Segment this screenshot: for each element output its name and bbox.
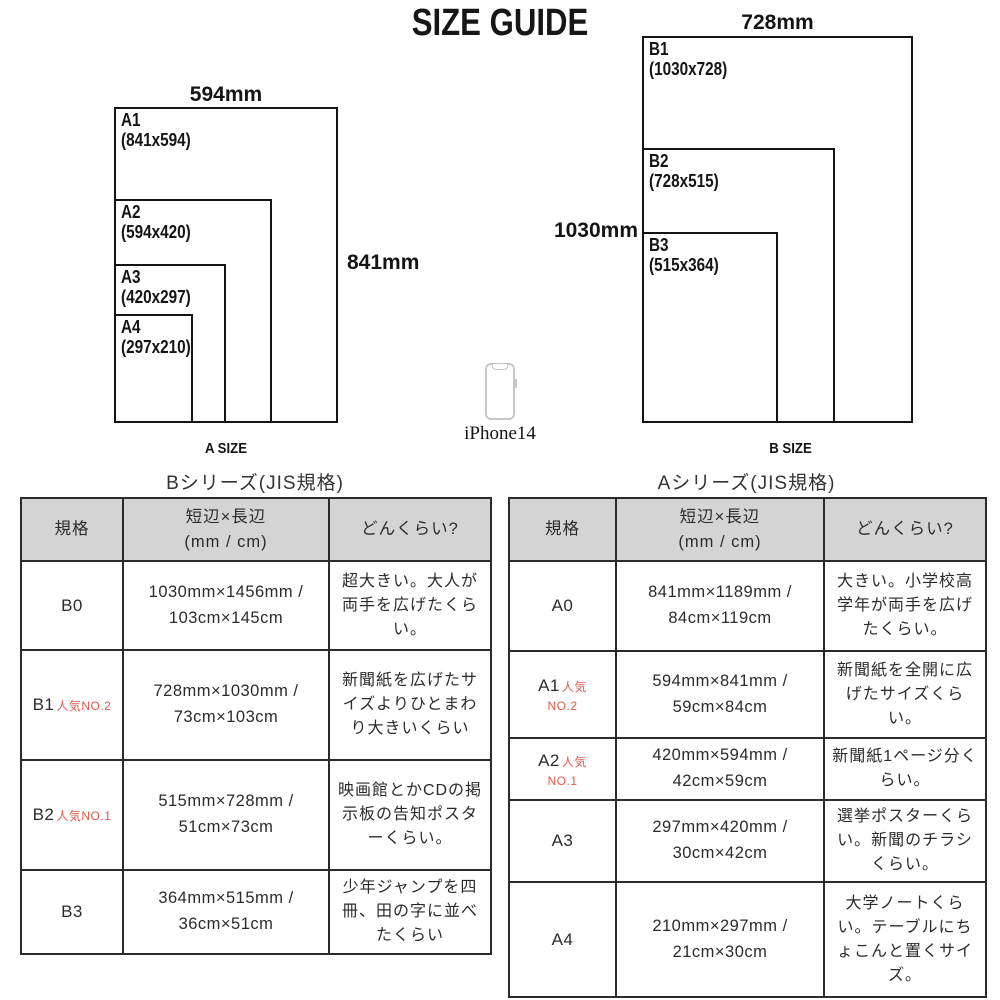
dims-cell: 210mm×297mm / 21cm×30cm (616, 882, 824, 997)
b1-name: B1 (649, 40, 727, 60)
b3-paper-rectangle: B3 (515x364) (642, 232, 778, 423)
dims-cell: 841mm×1189mm / 84cm×119cm (616, 561, 824, 651)
size-label: A4 (552, 930, 574, 949)
table-row: A4 210mm×297mm / 21cm×30cm 大学ノートくらい。テーブル… (509, 882, 986, 997)
size-label: A1 (538, 676, 560, 695)
a-top-dimension-label: 594mm (114, 83, 338, 107)
b-side-dimension-label: 1030mm (552, 219, 638, 243)
a-size-table: 規格 短辺×長辺 (mm / cm) どんくらい? A0 841mm×1189m… (508, 497, 987, 998)
desc-cell: 新聞紙を全開に広げたサイズくらい。 (824, 651, 986, 738)
table-row: B2人気NO.1 515mm×728mm / 51cm×73cm 映画館とかCD… (21, 760, 491, 870)
size-cell: A1人気 NO.2 (509, 651, 616, 738)
header-howbig: どんくらい? (824, 498, 986, 561)
desc-cell: 超大きい。大人が両手を広げたくらい。 (329, 561, 491, 650)
table-row: A1人気 NO.2 594mm×841mm / 59cm×84cm 新聞紙を全開… (509, 651, 986, 738)
a4-name: A4 (121, 318, 191, 338)
a2-label: A2 (594x420) (121, 203, 191, 243)
popularity-badge: 人気NO.1 (56, 809, 111, 823)
a3-dims: (420x297) (121, 288, 191, 308)
a4-paper-rectangle: A4 (297x210) (114, 314, 193, 423)
b-size-caption: B SIZE (671, 440, 909, 457)
size-cell: A0 (509, 561, 616, 651)
a-table-header-row: 規格 短辺×長辺 (mm / cm) どんくらい? (509, 498, 986, 561)
a4-label: A4 (297x210) (121, 318, 191, 358)
a3-name: A3 (121, 268, 191, 288)
size-cell: B1人気NO.2 (21, 650, 123, 760)
b2-label: B2 (728x515) (649, 152, 719, 192)
dims-cell: 420mm×594mm / 42cm×59cm (616, 738, 824, 800)
size-label: A2 (538, 751, 560, 770)
size-cell: B3 (21, 870, 123, 954)
size-label: B3 (61, 902, 83, 921)
table-row: B0 1030mm×1456mm / 103cm×145cm 超大きい。大人が両… (21, 561, 491, 650)
b3-dims: (515x364) (649, 256, 719, 276)
a2-name: A2 (121, 203, 191, 223)
popularity-badge: 人気 (562, 755, 587, 769)
desc-cell: 少年ジャンプを四冊、田の字に並べたくらい (329, 870, 491, 954)
table-row: A3 297mm×420mm / 30cm×42cm 選挙ポスターくらい。新聞の… (509, 800, 986, 882)
size-cell: A2人気 NO.1 (509, 738, 616, 800)
table-row: B3 364mm×515mm / 36cm×51cm 少年ジャンプを四冊、田の字… (21, 870, 491, 954)
iphone-label: iPhone14 (430, 423, 570, 445)
header-dimensions: 短辺×長辺 (mm / cm) (123, 498, 329, 561)
size-label: B1 (33, 695, 55, 714)
desc-cell: 大学ノートくらい。テーブルにちょこんと置くサイズ。 (824, 882, 986, 997)
size-label: A0 (552, 596, 574, 615)
a1-label: A1 (841x594) (121, 111, 191, 151)
header-dimensions-line2: (mm / cm) (623, 530, 817, 555)
size-label: B2 (33, 805, 55, 824)
header-size: 規格 (509, 498, 616, 561)
b-table-title: Bシリーズ(JIS規格) (20, 468, 490, 495)
b3-name: B3 (649, 236, 719, 256)
table-row: A2人気 NO.1 420mm×594mm / 42cm×59cm 新聞紙1ペー… (509, 738, 986, 800)
header-dimensions: 短辺×長辺 (mm / cm) (616, 498, 824, 561)
popularity-badge: 人気NO.2 (56, 699, 111, 713)
desc-cell: 映画館とかCDの掲示板の告知ポスターくらい。 (329, 760, 491, 870)
b-table-header-row: 規格 短辺×長辺 (mm / cm) どんくらい? (21, 498, 491, 561)
iphone-illustration (485, 363, 515, 420)
dims-cell: 515mm×728mm / 51cm×73cm (123, 760, 329, 870)
desc-cell: 新聞紙を広げたサイズよりひとまわり大きいくらい (329, 650, 491, 760)
a-side-dimension-label: 841mm (347, 251, 419, 275)
size-label: A3 (552, 831, 574, 850)
b2-dims: (728x515) (649, 172, 719, 192)
page-title: SIZE GUIDE (336, 2, 664, 45)
dims-cell: 594mm×841mm / 59cm×84cm (616, 651, 824, 738)
b1-dims: (1030x728) (649, 60, 727, 80)
dims-cell: 728mm×1030mm / 73cm×103cm (123, 650, 329, 760)
phone-notch-icon (492, 364, 508, 370)
size-guide-infographic: SIZE GUIDE 594mm A1 (841x594) A2 (594x42… (0, 0, 1000, 1000)
size-label: B0 (61, 596, 83, 615)
size-cell: B0 (21, 561, 123, 650)
size-cell: A3 (509, 800, 616, 882)
a-table-title: Aシリーズ(JIS規格) (508, 468, 985, 495)
popularity-badge-line2: NO.2 (516, 699, 609, 713)
b2-name: B2 (649, 152, 719, 172)
b3-label: B3 (515x364) (649, 236, 719, 276)
header-size: 規格 (21, 498, 123, 561)
a2-dims: (594x420) (121, 223, 191, 243)
b-size-table: 規格 短辺×長辺 (mm / cm) どんくらい? B0 1030mm×1456… (20, 497, 492, 955)
size-cell: A4 (509, 882, 616, 997)
size-cell: B2人気NO.1 (21, 760, 123, 870)
a1-name: A1 (121, 111, 191, 131)
popularity-badge-line2: NO.1 (516, 774, 609, 788)
dims-cell: 364mm×515mm / 36cm×51cm (123, 870, 329, 954)
a-size-caption: A SIZE (127, 440, 324, 457)
a1-dims: (841x594) (121, 131, 191, 151)
popularity-badge: 人気 (562, 680, 587, 694)
a3-label: A3 (420x297) (121, 268, 191, 308)
desc-cell: 大きい。小学校高学年が両手を広げたくらい。 (824, 561, 986, 651)
header-dimensions-line1: 短辺×長辺 (130, 505, 322, 530)
phone-side-button-icon (515, 379, 517, 388)
header-dimensions-line1: 短辺×長辺 (623, 505, 817, 530)
b-top-dimension-label: 728mm (642, 11, 913, 35)
header-howbig: どんくらい? (329, 498, 491, 561)
dims-cell: 297mm×420mm / 30cm×42cm (616, 800, 824, 882)
a4-dims: (297x210) (121, 338, 191, 358)
table-row: A0 841mm×1189mm / 84cm×119cm 大きい。小学校高学年が… (509, 561, 986, 651)
b1-label: B1 (1030x728) (649, 40, 727, 80)
header-dimensions-line2: (mm / cm) (130, 530, 322, 555)
table-row: B1人気NO.2 728mm×1030mm / 73cm×103cm 新聞紙を広… (21, 650, 491, 760)
desc-cell: 新聞紙1ページ分くらい。 (824, 738, 986, 800)
desc-cell: 選挙ポスターくらい。新聞のチラシくらい。 (824, 800, 986, 882)
dims-cell: 1030mm×1456mm / 103cm×145cm (123, 561, 329, 650)
